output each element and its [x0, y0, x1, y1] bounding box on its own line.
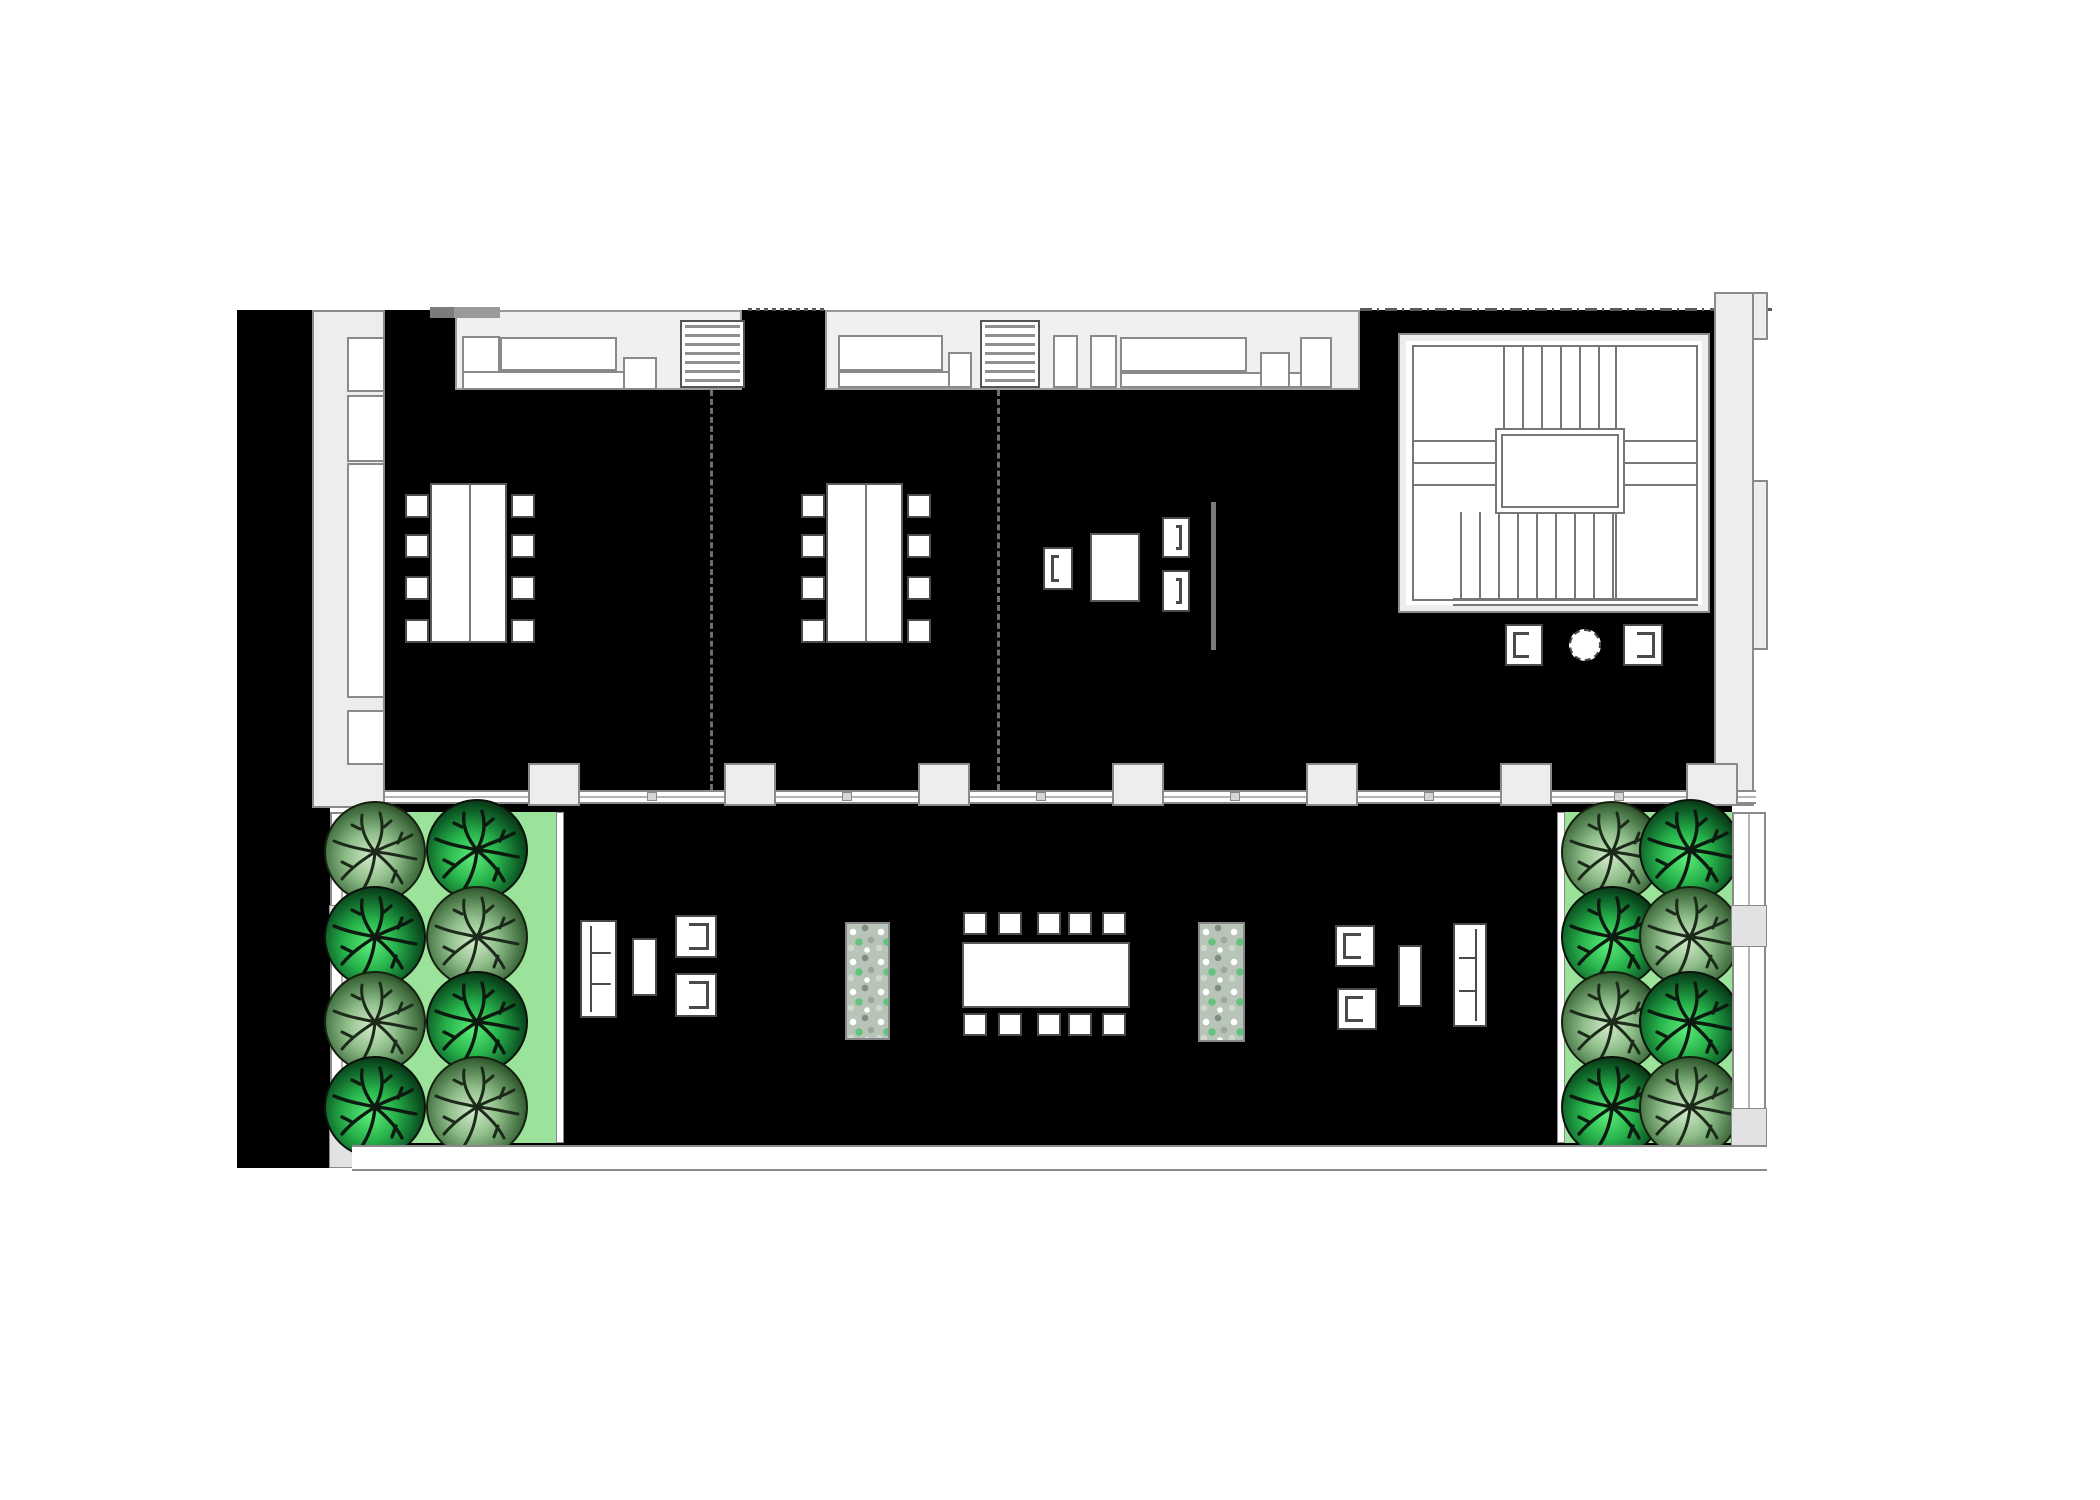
stair-well: [1495, 428, 1625, 514]
kitchen-counter: [1090, 335, 1117, 388]
chair: [405, 534, 429, 558]
coffee-table: [1398, 945, 1422, 1007]
sofa: [580, 920, 617, 1018]
stair-landing-line: [1414, 484, 1498, 486]
chair: [998, 912, 1022, 935]
wall-cabinet: [347, 337, 385, 392]
stair-landing-line: [1414, 462, 1498, 464]
chair: [1102, 912, 1126, 935]
door-leaf: [430, 307, 500, 318]
wall-cabinet: [347, 710, 385, 765]
facade-pier: [1500, 763, 1552, 806]
chair: [963, 912, 987, 935]
conference-table: [430, 483, 507, 643]
kitchen-counter: [500, 337, 617, 371]
round-table: [1569, 629, 1601, 661]
room-divider-dashed: [997, 390, 1000, 790]
chair: [801, 619, 825, 643]
chair: [907, 619, 931, 643]
chair: [511, 534, 535, 558]
coffee-table: [632, 938, 657, 996]
square-table: [1090, 533, 1140, 602]
chair: [511, 619, 535, 643]
east-wall-step: [1752, 480, 1768, 650]
wall-cabinet: [347, 463, 385, 698]
facade-pier: [1112, 763, 1164, 806]
chair: [907, 534, 931, 558]
chair: [801, 494, 825, 518]
stair-flight-up: [1503, 347, 1617, 433]
armchair: [1337, 988, 1377, 1030]
chair: [405, 494, 429, 518]
chair: [801, 534, 825, 558]
chair: [907, 576, 931, 600]
chair: [1037, 912, 1061, 935]
stair-bottom-edge: [1453, 604, 1698, 606]
kitchen-counter: [1260, 352, 1290, 388]
dash-dot-boundary: [1360, 308, 1775, 311]
screen-wall: [1211, 502, 1216, 650]
wall-cabinet: [347, 395, 385, 462]
kitchen-counter: [1300, 337, 1332, 388]
chair: [1102, 1013, 1126, 1036]
mullion-tick: [842, 792, 852, 801]
armchair: [1043, 547, 1073, 590]
sofa: [1453, 923, 1487, 1027]
stair-landing-line: [1620, 484, 1696, 486]
chair: [907, 494, 931, 518]
mullion-tick: [1036, 792, 1046, 801]
kitchen-counter: [1120, 337, 1247, 372]
facade-pier: [724, 763, 776, 806]
facade-pier: [918, 763, 970, 806]
planter-box: [845, 922, 890, 1040]
east-wall-step: [1752, 292, 1768, 340]
kitchen-counter: [948, 352, 972, 388]
chair: [511, 494, 535, 518]
mullion-tick: [647, 792, 657, 801]
chair: [405, 619, 429, 643]
mullion-tick: [1230, 792, 1240, 801]
armchair: [1162, 517, 1190, 558]
stair-flight-down: [1460, 512, 1617, 598]
stair-bottom-edge: [1453, 598, 1698, 600]
kitchen-counter: [1053, 335, 1078, 388]
chair: [998, 1013, 1022, 1036]
planter-edge-wall: [556, 812, 564, 1143]
planter-box: [1198, 922, 1245, 1042]
dining-table: [962, 942, 1130, 1008]
chair: [1068, 1013, 1092, 1036]
east-wall: [1714, 292, 1754, 806]
chair: [801, 576, 825, 600]
floor-plan-canvas: [0, 0, 2100, 1500]
armchair: [1335, 925, 1375, 967]
kitchen-counter: [838, 335, 943, 371]
service-shaft: [680, 320, 745, 388]
room-divider-dashed: [710, 390, 713, 790]
facade-solid-block: [1731, 905, 1767, 947]
facade-pier: [528, 763, 580, 806]
armchair: [675, 973, 717, 1017]
chair: [405, 576, 429, 600]
armchair: [675, 915, 717, 958]
mullion-tick: [1424, 792, 1434, 801]
armchair: [1162, 570, 1190, 612]
dotted-wall-line: [748, 308, 824, 311]
stair-landing-line: [1620, 462, 1696, 464]
service-shaft: [980, 320, 1040, 388]
chair: [1068, 912, 1092, 935]
stair-landing-line: [1414, 440, 1498, 442]
armchair: [1623, 624, 1663, 666]
kitchen-counter: [623, 357, 657, 390]
terrace-parapet-walk: [352, 1145, 1767, 1171]
armchair: [1505, 624, 1543, 666]
chair: [511, 576, 535, 600]
chair: [1037, 1013, 1061, 1036]
facade-pier: [1306, 763, 1358, 806]
chair: [963, 1013, 987, 1036]
conference-table: [826, 483, 903, 643]
stair-landing-line: [1620, 440, 1696, 442]
